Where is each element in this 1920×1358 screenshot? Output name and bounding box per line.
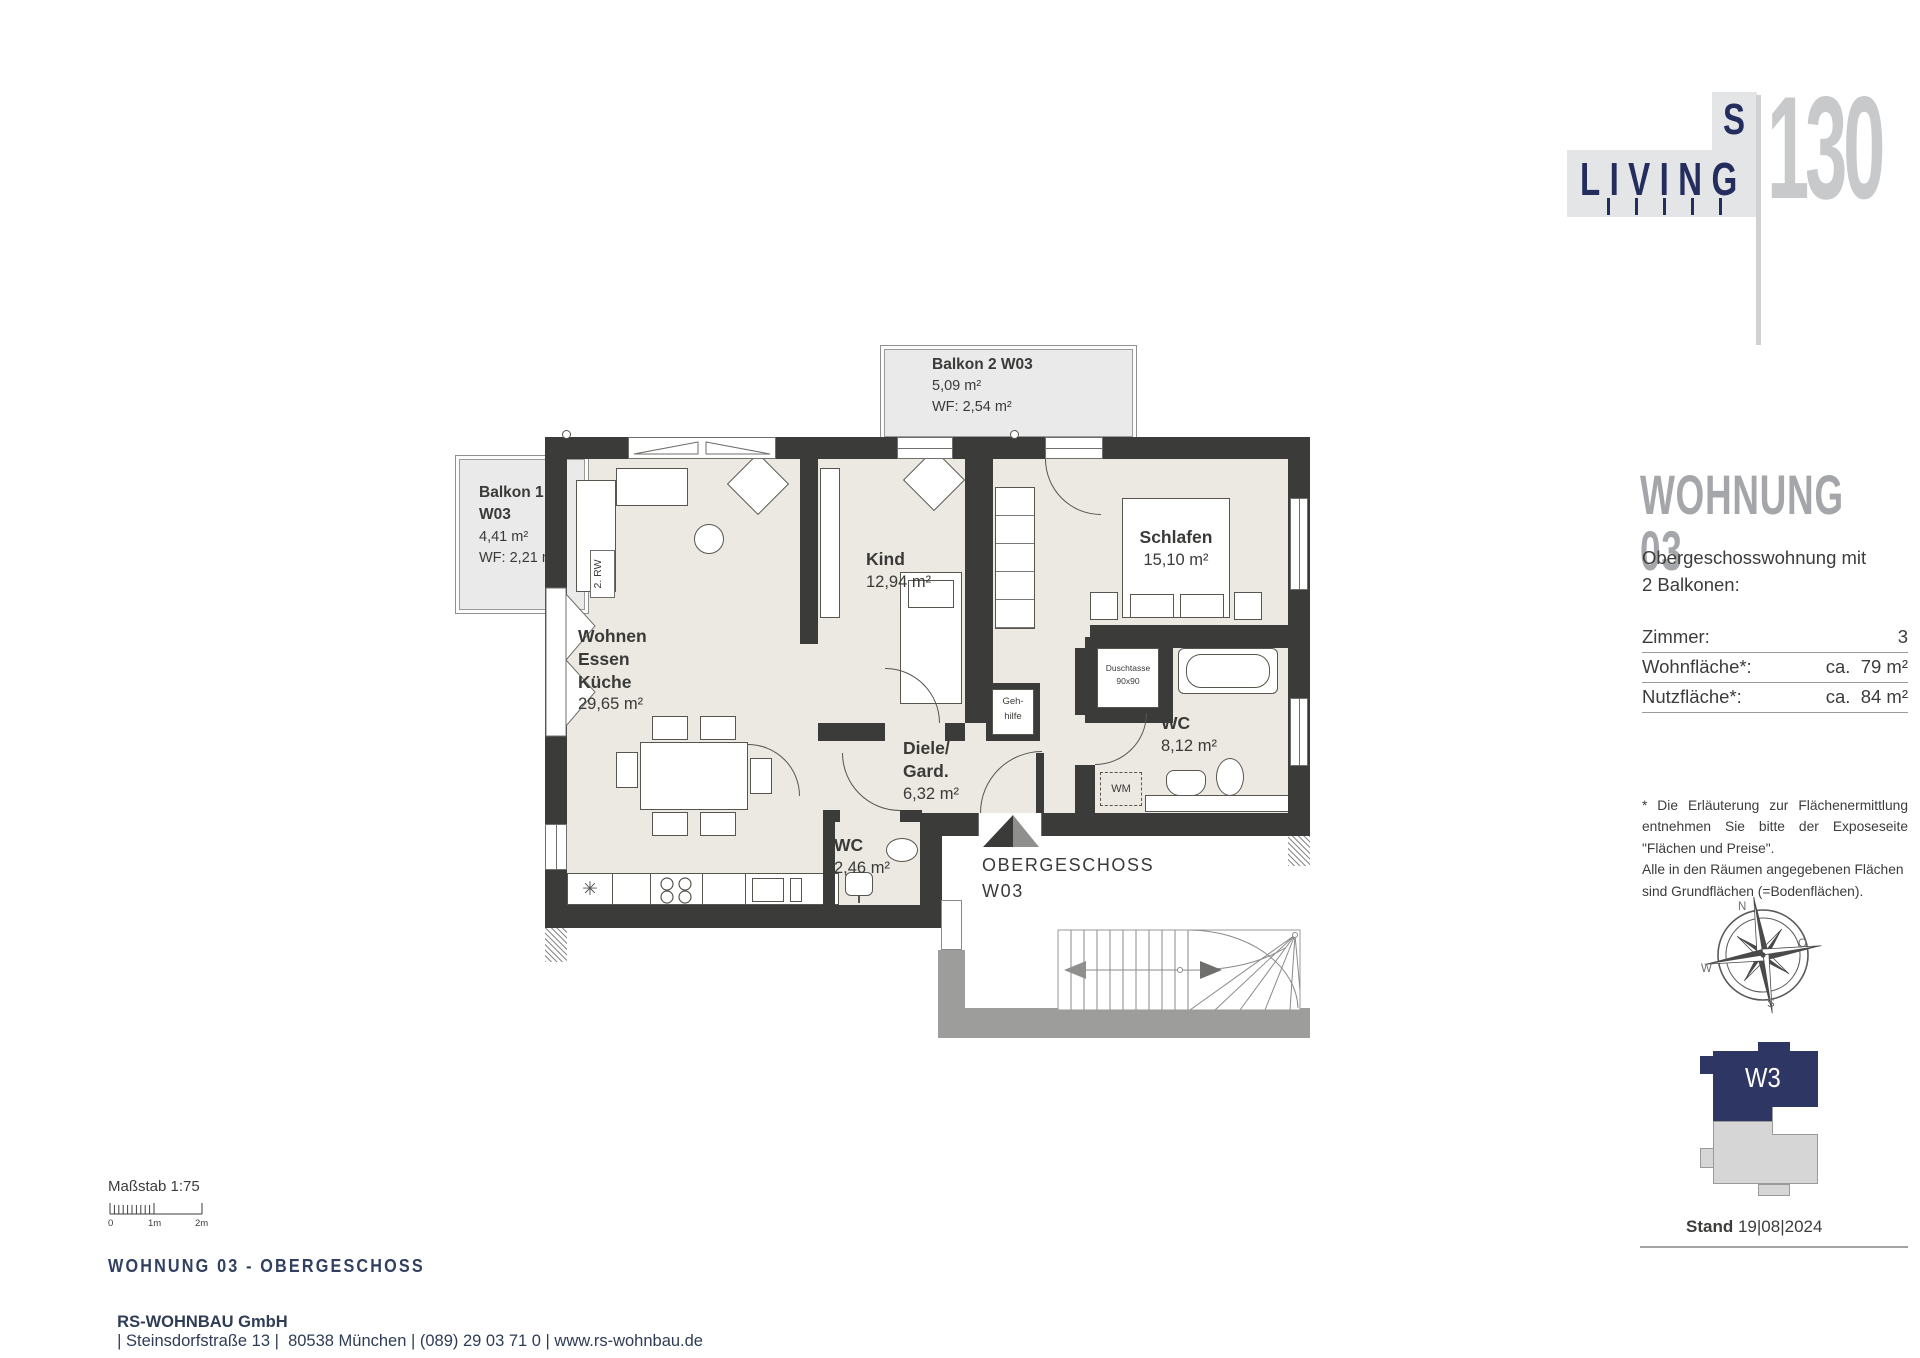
north-triangle-icon — [983, 815, 1039, 847]
fact-label: Nutzfläche*: — [1642, 686, 1742, 708]
wc-sink — [886, 838, 918, 862]
building-unit-label: W3 — [1713, 1062, 1818, 1094]
compass-label-e: O — [1798, 938, 1807, 950]
balcony-door — [1045, 437, 1103, 459]
wall-hatch — [545, 928, 567, 962]
scale-tick-1m: 1m — [148, 1218, 161, 1229]
footnote-line: * Die Erläuterung zur Flächenermittlung … — [1642, 795, 1908, 859]
building-gray-tab — [1758, 1184, 1790, 1196]
interior-wall — [900, 810, 922, 822]
footer-contact: RS-WOHNBAU GmbH | Steinsdorfstraße 13 | … — [108, 1294, 703, 1351]
compass-rose — [1689, 881, 1838, 1030]
counter-divider — [745, 874, 746, 904]
scale-bar: 0 1m 2m — [106, 1202, 236, 1232]
bath-counter — [1145, 795, 1290, 812]
entrance-door-leaf — [1036, 753, 1044, 813]
stand-date: Stand 19|08|2024 — [1686, 1217, 1822, 1237]
nightstand — [1090, 592, 1118, 620]
stairwell-wall — [938, 950, 965, 1012]
logo-divider-line — [1756, 95, 1761, 345]
compass-label-w: W — [1701, 963, 1712, 975]
apartment-intro: Obergeschosswohnung mit 2 Balkonen: — [1642, 545, 1866, 599]
floor-label: OBERGESCHOSS W03 — [982, 852, 1154, 904]
building-notch — [1772, 1107, 1818, 1135]
wardrobe — [995, 487, 1035, 629]
scale-tick-2m: 2m — [195, 1218, 208, 1229]
kitchen-appliance — [752, 878, 784, 902]
wc-toilet-mark — [858, 896, 860, 903]
side-table — [694, 524, 724, 554]
logo-s-text: S — [1723, 98, 1752, 142]
stand-label: Stand — [1686, 1217, 1733, 1236]
balcony-wf: WF: 2,54 m² — [932, 397, 1033, 418]
chair — [616, 752, 638, 788]
counter-divider — [702, 874, 703, 904]
chair — [700, 812, 736, 836]
compass-label-s: S — [1767, 998, 1775, 1010]
fact-value: ca. 79 m² — [1826, 656, 1908, 678]
balcony-name: Balkon 2 W03 — [932, 354, 1033, 376]
window — [1290, 498, 1308, 590]
window — [545, 824, 567, 870]
chair — [652, 716, 688, 740]
exterior-wall-bottom — [545, 905, 942, 928]
logo-tick — [1691, 198, 1694, 215]
counter-divider — [650, 874, 651, 904]
hob-icon — [655, 876, 701, 904]
balcony-area: 5,09 m² — [932, 376, 1033, 397]
exterior-wall — [920, 813, 942, 928]
logo-tick — [1663, 198, 1666, 215]
chair — [700, 716, 736, 740]
washing-machine-label: WM — [1111, 783, 1131, 795]
room-label-wc: WC 2,46 m² — [834, 834, 890, 879]
chair — [652, 812, 688, 836]
stairs — [1050, 920, 1310, 1040]
window — [1290, 698, 1308, 766]
footer-title: WOHNUNG 03 - OBERGESCHOSS — [108, 1256, 460, 1277]
shower-label: Duschtasse 90x90 — [1097, 662, 1159, 688]
sofa — [616, 468, 688, 506]
scale-tick-0: 0 — [108, 1218, 113, 1229]
facts-row: Wohnfläche*: ca. 79 m² — [1642, 653, 1908, 683]
wall-hatch — [1288, 836, 1310, 866]
fact-label: Wohnfläche*: — [1642, 656, 1752, 678]
scale-caption: Maßstab 1:75 — [108, 1178, 200, 1195]
bed-drawer — [1130, 594, 1174, 618]
exterior-wall-right — [1288, 437, 1310, 836]
facts-row: Zimmer: 3 — [1642, 625, 1908, 653]
bookshelf — [820, 468, 840, 618]
walking-aid-label: Geh- hilfe — [992, 694, 1034, 724]
window — [628, 437, 776, 459]
stand-value: 19|08|2024 — [1738, 1217, 1822, 1236]
footnote: * Die Erläuterung zur Flächenermittlung … — [1642, 795, 1908, 902]
interior-wall — [818, 723, 885, 741]
balcony-door — [897, 437, 953, 459]
logo-tick — [1719, 198, 1722, 215]
facts-table: Zimmer: 3 Wohnfläche*: ca. 79 m² Nutzflä… — [1642, 625, 1908, 713]
intro-line: 2 Balkonen: — [1642, 572, 1866, 599]
logo-tick — [1607, 198, 1610, 215]
bath-sink — [1166, 770, 1206, 796]
logo-tick — [1635, 198, 1638, 215]
panel-divider — [1640, 1246, 1908, 1248]
fact-value: ca. 84 m² — [1826, 686, 1908, 708]
building-gray-tab — [1700, 1148, 1714, 1168]
rw-label: 2. RW — [592, 550, 612, 598]
facts-row: Nutzfläche*: ca. 84 m² — [1642, 683, 1908, 713]
kitchen-appliance — [790, 878, 802, 902]
axis-marker — [562, 430, 571, 439]
interior-wall — [1075, 765, 1095, 813]
dining-table — [640, 742, 748, 810]
toilet — [1216, 758, 1244, 796]
footer-details: | Steinsdorfstraße 13 | 80538 München | … — [117, 1332, 703, 1350]
fact-label: Zimmer: — [1642, 626, 1710, 648]
intro-line: Obergeschosswohnung mit — [1642, 545, 1866, 572]
sink-icon: ✳ — [582, 878, 598, 901]
room-label-kind: Kind 12,94 m² — [866, 548, 931, 593]
building-navy-tab — [1700, 1056, 1714, 1074]
bathtub-inner — [1186, 654, 1270, 688]
room-label-schlafen: Schlafen 15,10 m² — [1122, 526, 1230, 571]
stairwell-door-leaf — [941, 900, 962, 950]
axis-marker — [1010, 430, 1019, 439]
room-label-diele: Diele/ Gard. 6,32 m² — [903, 737, 959, 805]
compass-label-n: N — [1738, 901, 1746, 913]
counter-divider — [612, 874, 613, 904]
room-label-wohnen: Wohnen Essen Küche 29,65 m² — [578, 625, 647, 716]
nightstand — [1234, 592, 1262, 620]
room-label-bad: WC 8,12 m² — [1161, 712, 1217, 757]
fact-value: 3 — [1898, 626, 1908, 648]
bed-drawer — [1180, 594, 1224, 618]
balcony-2-label: Balkon 2 W03 5,09 m² WF: 2,54 m² — [932, 354, 1033, 419]
washing-machine: WM — [1100, 772, 1142, 806]
logo-number: 130 — [1767, 90, 1920, 207]
interior-wall — [800, 459, 818, 644]
footer-company: RS-WOHNBAU GmbH — [117, 1313, 288, 1331]
